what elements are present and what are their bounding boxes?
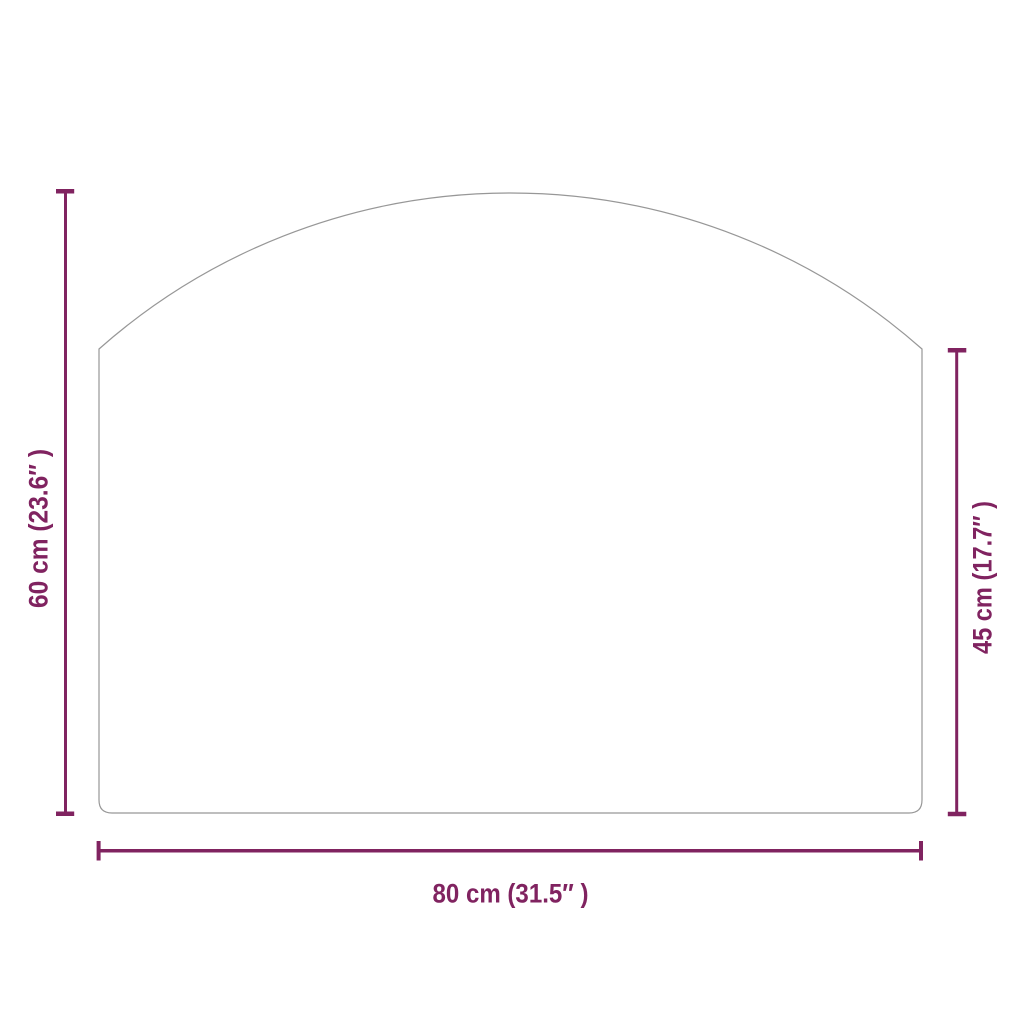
svg-text:45 cm (17.7″ ): 45 cm (17.7″ ) [968, 501, 998, 654]
svg-text:80 cm (31.5″ ): 80 cm (31.5″ ) [433, 879, 589, 909]
svg-text:60 cm (23.6″ ): 60 cm (23.6″ ) [24, 449, 54, 608]
